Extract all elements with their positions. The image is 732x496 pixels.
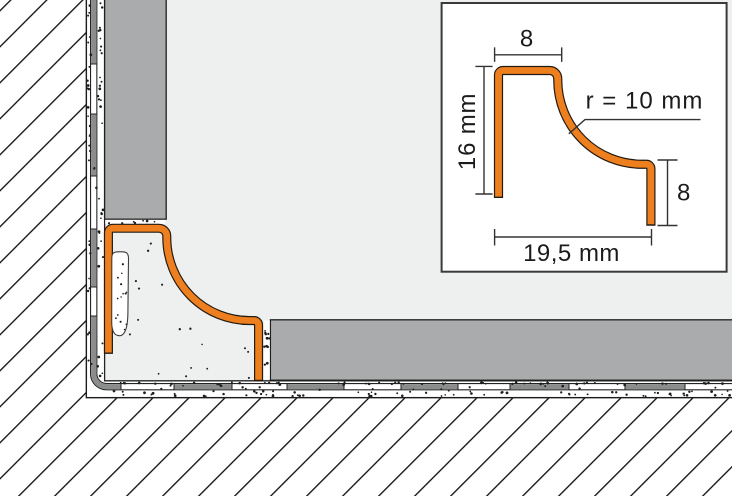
svg-text:8: 8 [677,180,690,207]
svg-text:r = 10 mm: r = 10 mm [586,88,704,115]
svg-text:16 mm: 16 mm [454,93,481,170]
svg-text:8: 8 [520,26,533,53]
svg-text:19,5 mm: 19,5 mm [523,240,620,267]
